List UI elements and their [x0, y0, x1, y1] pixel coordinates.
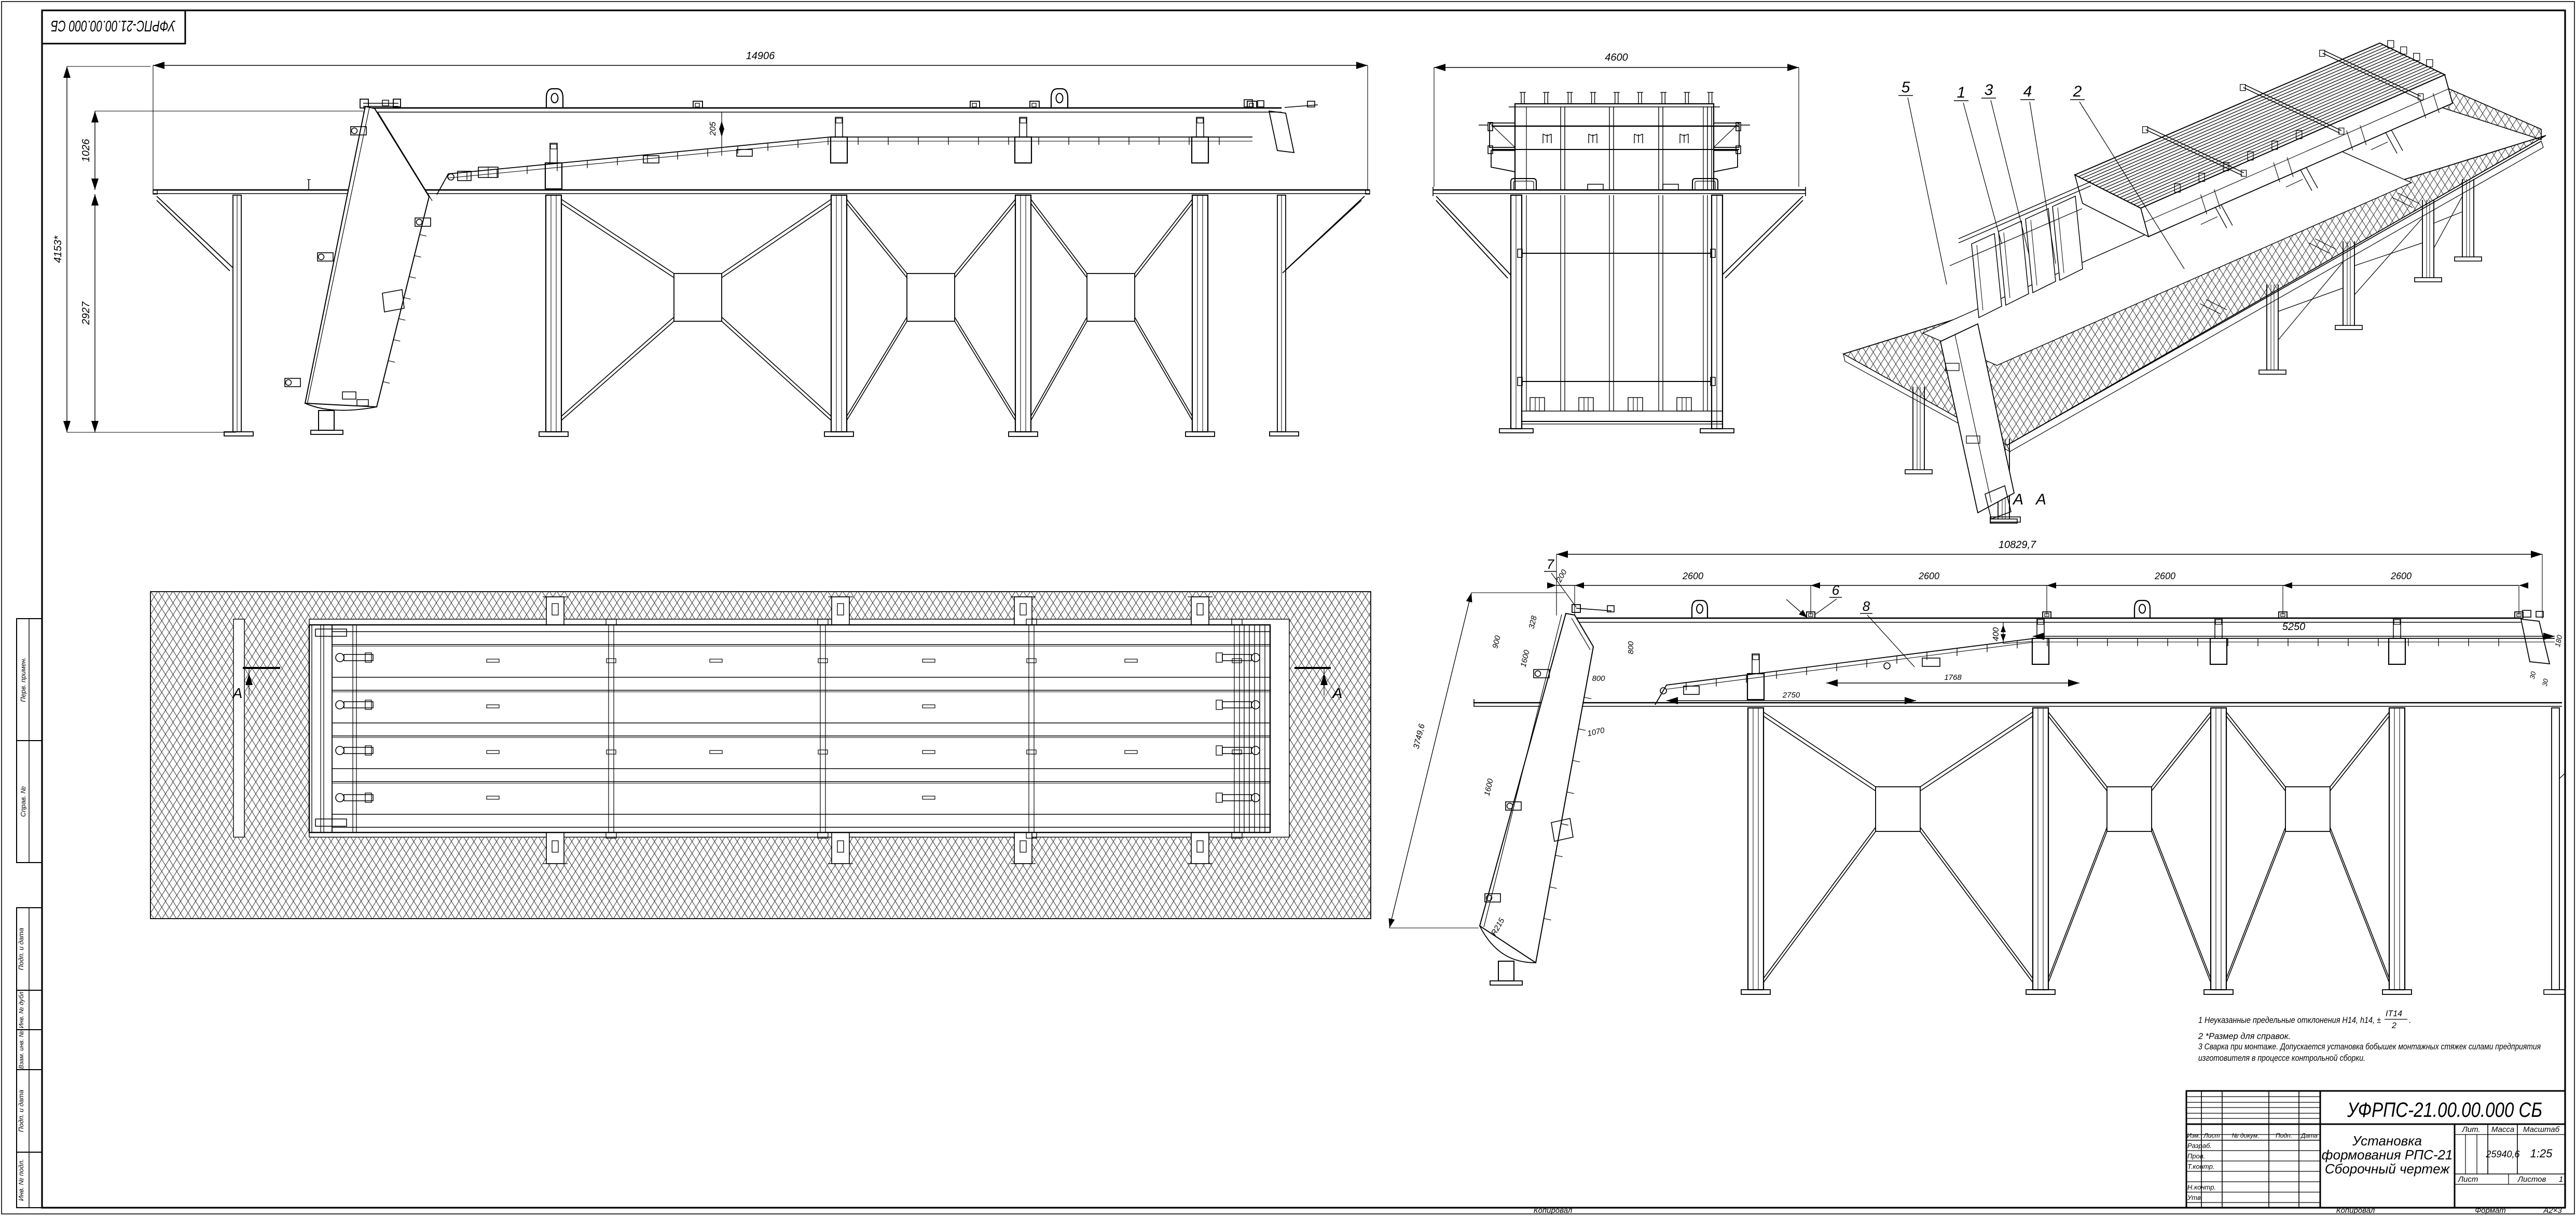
svg-text:7: 7	[1547, 556, 1555, 572]
svg-text:1 Неуказанные предельные откл: 1 Неуказанные предельные отклонения Н14,…	[2198, 1015, 2381, 1025]
svg-text:Масштаб: Масштаб	[2523, 1125, 2560, 1134]
svg-text:3 Сварка при монтаже. Допуска: 3 Сварка при монтаже. Допускается устано…	[2198, 1042, 2541, 1051]
svg-text:2600: 2600	[1682, 571, 1703, 581]
svg-text:Копировал: Копировал	[2336, 1206, 2375, 1215]
svg-text:1: 1	[2559, 1175, 2563, 1184]
svg-text:IT14: IT14	[2386, 1009, 2402, 1018]
svg-text:Перв. примен.: Перв. примен.	[19, 657, 27, 702]
svg-text:изготовителя в процессе контро: изготовителя в процессе контрольной сбор…	[2198, 1053, 2365, 1063]
svg-text:формования РПС-21: формования РПС-21	[2322, 1147, 2453, 1163]
svg-text:Н.контр.: Н.контр.	[2187, 1183, 2216, 1191]
svg-text:1026: 1026	[80, 139, 92, 162]
svg-text:4: 4	[2023, 83, 2032, 100]
svg-text:205: 205	[709, 122, 718, 136]
svg-text:Разраб.: Разраб.	[2187, 1142, 2212, 1150]
svg-text:5250: 5250	[2282, 621, 2306, 633]
svg-text:А: А	[1332, 685, 1343, 701]
svg-text:А2×3: А2×3	[2543, 1206, 2562, 1215]
svg-text:14906: 14906	[746, 50, 775, 62]
svg-text:Установка: Установка	[2352, 1133, 2422, 1149]
svg-text:Пров.: Пров.	[2187, 1152, 2205, 1160]
svg-text:А: А	[2012, 491, 2023, 508]
svg-text:2750: 2750	[1782, 691, 1800, 700]
svg-text:Формат: Формат	[2475, 1206, 2506, 1215]
svg-text:Инв. № подл.: Инв. № подл.	[17, 1159, 25, 1201]
svg-text:10829,7: 10829,7	[1999, 539, 2036, 551]
svg-text:Копировал: Копировал	[1534, 1206, 1573, 1215]
svg-text:Подп. и дата: Подп. и дата	[17, 928, 25, 970]
svg-text:1768: 1768	[1944, 673, 1962, 682]
svg-text:2600: 2600	[1918, 571, 1939, 581]
svg-text:5: 5	[1902, 79, 1910, 96]
svg-text:1:25: 1:25	[2530, 1147, 2553, 1160]
svg-text:Т.контр.: Т.контр.	[2187, 1163, 2214, 1170]
svg-text:Взам. инв. №: Взам. инв. №	[18, 1030, 25, 1069]
svg-text:800: 800	[1627, 641, 1635, 654]
svg-text:Подп. и дата: Подп. и дата	[17, 1090, 25, 1132]
svg-text:Лист: Лист	[2203, 1132, 2220, 1139]
svg-text:УФРПС-21.00.00.000 СБ: УФРПС-21.00.00.000 СБ	[2347, 1099, 2542, 1122]
svg-text:1: 1	[1957, 84, 1966, 101]
svg-text:Изм.: Изм.	[2187, 1132, 2200, 1139]
svg-text:Масса: Масса	[2491, 1125, 2514, 1134]
svg-text:Утв.: Утв.	[2187, 1194, 2203, 1201]
svg-text:8: 8	[1863, 598, 1870, 614]
svg-text:Подп.: Подп.	[2276, 1132, 2292, 1139]
svg-text:4600: 4600	[1605, 52, 1628, 63]
svg-text:2600: 2600	[2390, 571, 2412, 581]
svg-text:А: А	[2035, 491, 2046, 508]
svg-text:25940,6: 25940,6	[2485, 1149, 2520, 1159]
svg-text:Листов: Листов	[2517, 1175, 2546, 1184]
svg-text:Дата: Дата	[2300, 1132, 2318, 1139]
svg-text:Сборочный чертеж: Сборочный чертеж	[2325, 1161, 2450, 1177]
svg-text:Лит.: Лит.	[2461, 1125, 2480, 1134]
svg-text:3: 3	[1985, 81, 1993, 99]
svg-text:Справ. №: Справ. №	[19, 786, 27, 817]
svg-text:Лист: Лист	[2458, 1175, 2478, 1184]
svg-text:2: 2	[2391, 1021, 2396, 1030]
svg-text:.: .	[2409, 1016, 2411, 1025]
svg-text:Инв. № дубл: Инв. № дубл	[18, 992, 25, 1029]
svg-text:УФРПС-21.00.00.000 СБ: УФРПС-21.00.00.000 СБ	[51, 17, 176, 34]
svg-text:2600: 2600	[2154, 571, 2175, 581]
svg-text:А: А	[232, 685, 243, 701]
svg-text:№ докум.: № докум.	[2232, 1132, 2260, 1139]
svg-text:2927: 2927	[80, 301, 92, 325]
svg-text:4153*: 4153*	[52, 235, 64, 263]
svg-text:400: 400	[1992, 627, 2001, 641]
svg-text:2 *Размер для справок.: 2 *Размер для справок.	[2198, 1031, 2291, 1041]
svg-text:2: 2	[2073, 83, 2082, 100]
svg-text:800: 800	[1592, 674, 1605, 683]
svg-text:6: 6	[1832, 582, 1840, 598]
